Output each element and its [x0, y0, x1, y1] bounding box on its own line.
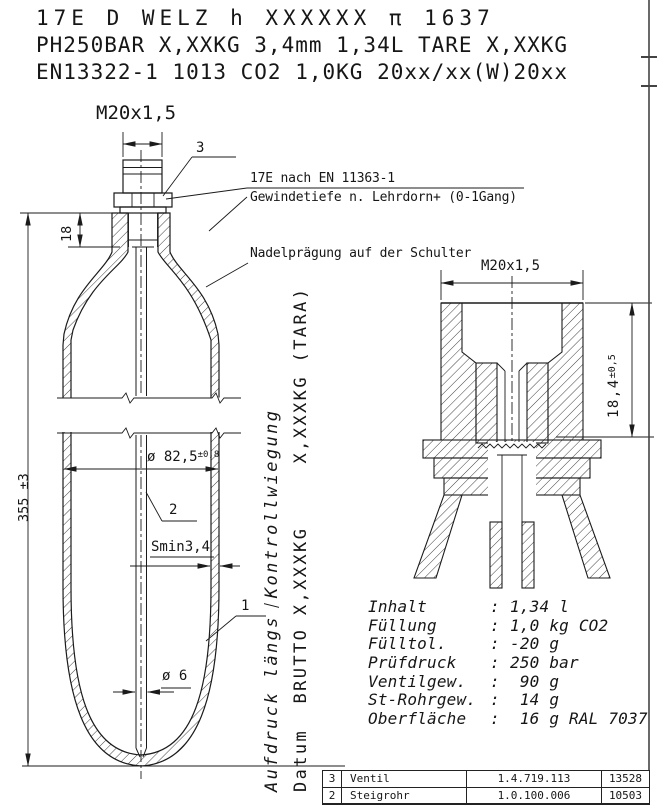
spec-label: Füllung — [368, 617, 490, 636]
note-shoulder-marking: Nadelprägung auf der Schulter — [250, 246, 471, 261]
spec-colon: : — [490, 673, 510, 692]
part-id: 13528 — [602, 771, 649, 788]
dim-total-height: 355 ±3 — [16, 473, 32, 522]
dim-neck-height: 18 — [59, 226, 75, 242]
stamp-header: 17E D WELZ h XXXXXX π 1637 PH250BAR X,XX… — [36, 5, 568, 86]
part-name: Steigrohr — [342, 788, 467, 805]
parts-table: 3 Ventil 1.4.719.113 13528 2 Steigrohr 1… — [322, 770, 650, 805]
spec-row-ventilgew: Ventilgew.: 90 g — [368, 673, 648, 692]
vertical-note-divider — [264, 603, 279, 608]
spec-value: 90 g — [510, 672, 559, 691]
vertical-note-aufdruck-part1: Aufdruck längs — [262, 615, 282, 792]
spec-colon: : — [490, 635, 510, 654]
part-number: 1.4.719.113 — [467, 771, 602, 788]
callout-tube: 2 — [169, 502, 177, 518]
spec-colon: : — [490, 598, 510, 617]
part-pos: 2 — [323, 788, 342, 805]
dim-thread-depth: 18,4±0,5 — [606, 354, 622, 418]
part-number: 1.0.100.006 — [467, 788, 602, 805]
spec-list: Inhalt:1,34 l Füllung:1,0 kg CO2 Fülltol… — [368, 598, 648, 729]
spec-value: 16 g RAL 7037 — [510, 709, 648, 728]
dim-wall-min: Smin3,4 — [151, 539, 210, 555]
dim-outer-diameter-tol: ±0,8 — [198, 450, 220, 460]
spec-value: 250 bar — [510, 653, 579, 672]
vertical-note-datum: Datum BRUTTO X,XXXKG X,XXXKG (TARA) — [291, 287, 311, 792]
note-thread-depth: Gewindetiefe n. Lehrdorn+ (0-1Gang) — [250, 190, 517, 205]
spec-row-fuelltol: Fülltol.:-20 g — [368, 635, 648, 654]
part-pos: 3 — [323, 771, 342, 788]
callout-valve: 3 — [196, 140, 204, 156]
spec-label: Inhalt — [368, 598, 490, 617]
spec-label: St-Rohrgew. — [368, 691, 490, 710]
spec-label: Ventilgew. — [368, 673, 490, 692]
stamp-line-3: EN13322-1 1013 CO2 1,0KG 20xx/xx(W)20xx — [36, 59, 568, 86]
note-thread-standard: 17E nach EN 11363-1 — [250, 171, 395, 186]
spec-row-inhalt: Inhalt:1,34 l — [368, 598, 648, 617]
spec-label: Oberfläche — [368, 710, 490, 729]
spec-row-pruefdruck: Prüfdruck:250 bar — [368, 654, 648, 673]
dim-outer-diameter-value: ø 82,5 — [147, 449, 198, 465]
stamp-line-1: 17E D WELZ h XXXXXX π 1637 — [36, 5, 568, 32]
callout-body: 1 — [241, 598, 249, 614]
vertical-note-aufdruck: Aufdruck längsKontrollwiegung — [262, 409, 282, 792]
dim-thread-depth-value: 18,4 — [606, 378, 622, 418]
spec-colon: : — [490, 691, 510, 710]
stamp-line-2: PH250BAR X,XXKG 3,4mm 1,34L TARE X,XXKG — [36, 32, 568, 59]
detail-view — [414, 270, 654, 604]
spec-row-oberflaeche: Oberfläche: 16 g RAL 7037 — [368, 710, 648, 729]
spec-row-strohrgew: St-Rohrgew.: 14 g — [368, 691, 648, 710]
spec-colon: : — [490, 710, 510, 729]
spec-value: 1,34 l — [510, 597, 569, 616]
dim-thread-detail: M20x1,5 — [481, 258, 540, 274]
dim-tube-diameter: ø 6 — [162, 668, 187, 684]
dim-thread-depth-tol: ±0,5 — [607, 354, 618, 378]
spec-colon: : — [490, 617, 510, 636]
dim-outer-diameter: ø 82,5±0,8 — [147, 449, 219, 465]
technical-drawing-page: { "stamp_header": { "line1": "17E D WELZ… — [0, 0, 658, 801]
spec-value: 1,0 kg CO2 — [510, 616, 608, 635]
spec-row-fuellung: Füllung:1,0 kg CO2 — [368, 617, 648, 636]
spec-value: -20 g — [510, 634, 559, 653]
part-name: Ventil — [342, 771, 467, 788]
spec-label: Fülltol. — [368, 635, 490, 654]
spec-colon: : — [490, 654, 510, 673]
spec-value: 14 g — [510, 690, 559, 709]
part-id: 10503 — [602, 788, 649, 805]
vertical-note-aufdruck-part2: Kontrollwiegung — [262, 409, 282, 599]
dim-thread-main: M20x1,5 — [96, 102, 176, 124]
spec-label: Prüfdruck — [368, 654, 490, 673]
